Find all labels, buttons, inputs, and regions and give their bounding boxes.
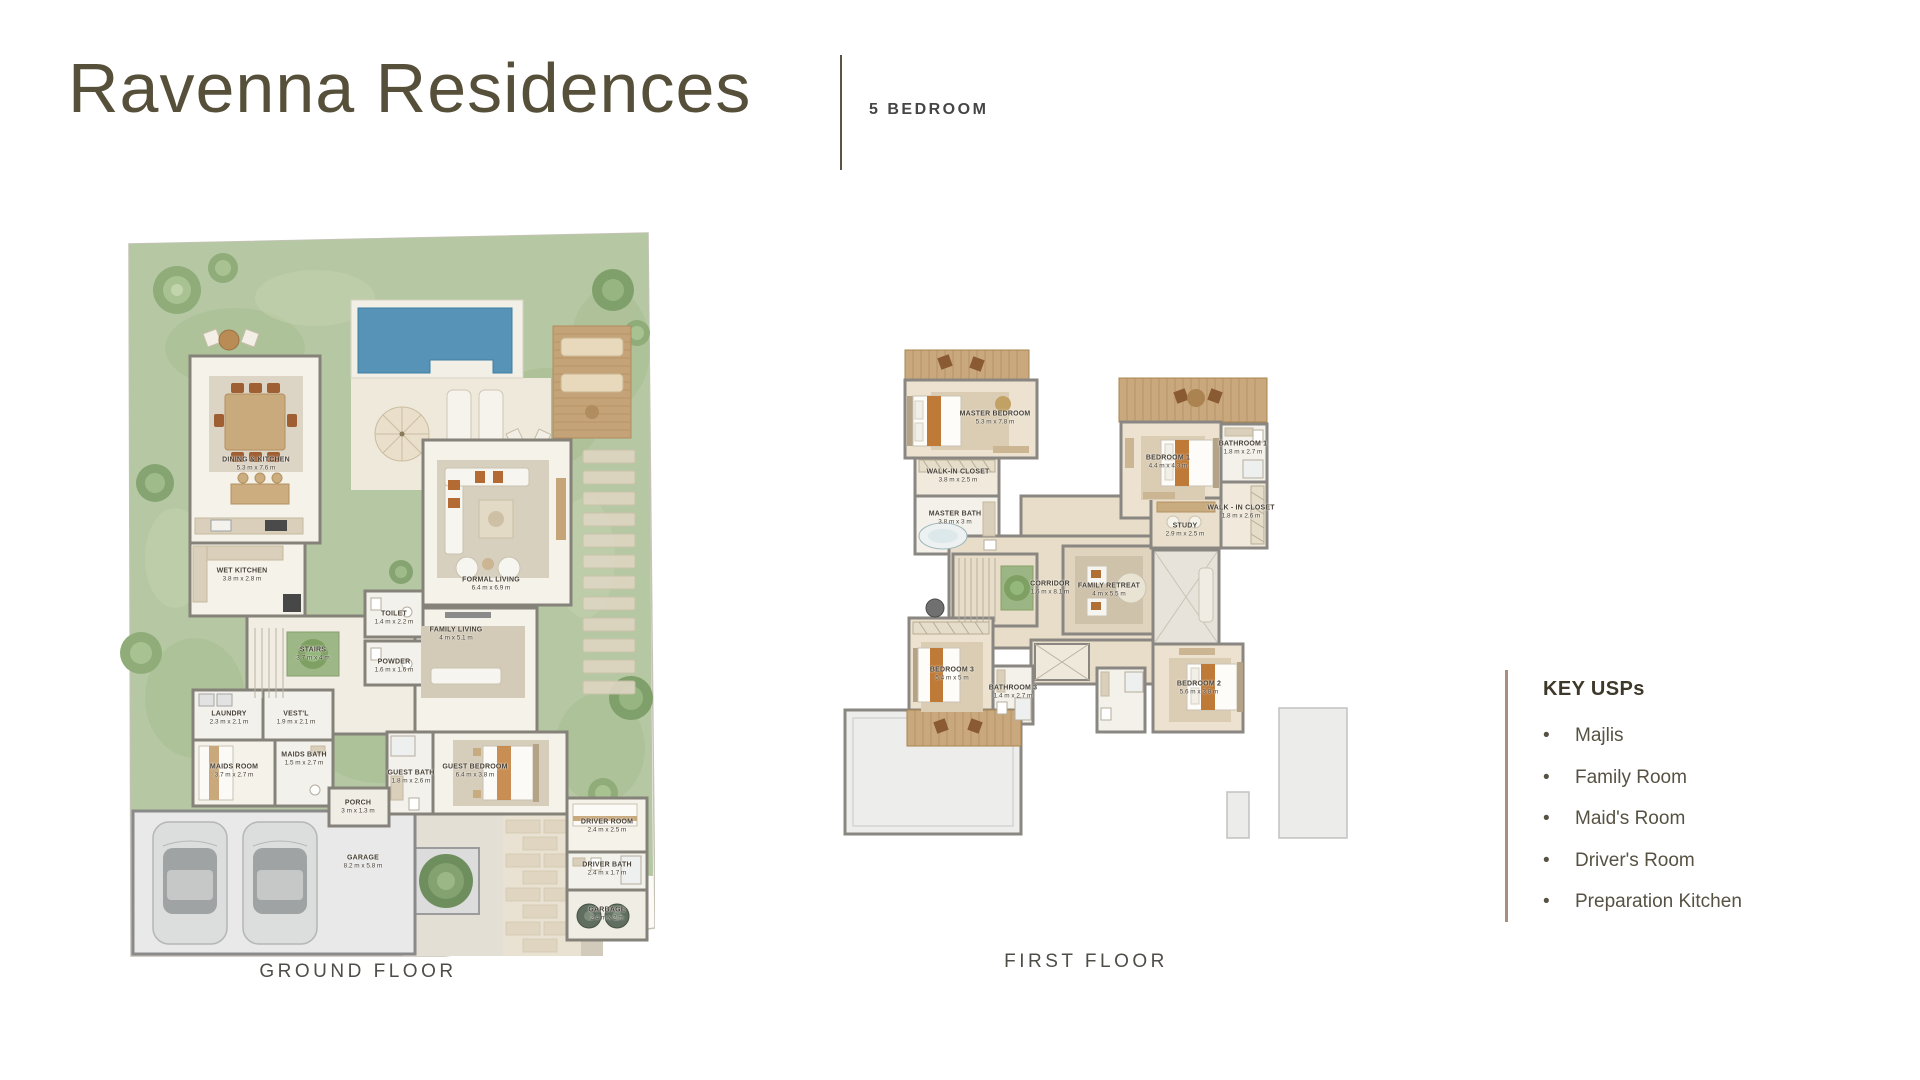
usp-accent-rule xyxy=(1505,670,1508,922)
brochure-page: Ravenna Residences 5 BEDROOM xyxy=(0,0,1920,1080)
first-floor-plan: MASTER BEDROOM5.3 m x 7.8 m WALK-IN CLOS… xyxy=(843,340,1358,940)
ground-floor-plan-graphic xyxy=(115,228,655,958)
label-maids-room: MAIDS ROOM3.7 m x 2.7 m xyxy=(210,762,258,779)
courtyard-planter xyxy=(413,848,479,914)
label-wet-kitchen: WET KITCHEN3.8 m x 2.8 m xyxy=(217,566,268,583)
header-divider xyxy=(840,55,842,170)
label-driver-room: DRIVER ROOM2.4 m x 2.5 m xyxy=(581,817,633,834)
key-usps-panel: KEY USPs Majlis Family Room Maid's Room … xyxy=(1543,678,1742,931)
label-corridor: CORRIDOR1.6 m x 8.1 m xyxy=(1030,579,1070,596)
label-dining-kitchen: DINING & KITCHEN5.3 m x 7.6 m xyxy=(222,455,290,472)
usp-item-drivers-room: Driver's Room xyxy=(1543,848,1742,874)
unit-type-label: 5 BEDROOM xyxy=(869,101,988,119)
car-2 xyxy=(243,822,317,944)
roof-right-small xyxy=(1227,792,1249,838)
linen-closet xyxy=(1035,644,1089,680)
first-floor-caption: FIRST FLOOR xyxy=(956,951,1216,973)
label-master-bedroom: MASTER BEDROOM5.3 m x 7.8 m xyxy=(960,409,1031,426)
label-vestibule: VEST'L1.9 m x 2.1 m xyxy=(277,709,316,726)
label-master-bath: MASTER BATH3.8 m x 3 m xyxy=(929,509,982,526)
key-usps-list: Majlis Family Room Maid's Room Driver's … xyxy=(1543,723,1742,915)
label-study: STUDY2.9 m x 2.5 m xyxy=(1166,521,1205,538)
label-formal-living: FORMAL LIVING6.4 m x 6.9 m xyxy=(462,575,520,592)
label-garbage: GARBAGE2.4 m x 2 m xyxy=(588,905,625,922)
label-bedroom-3: BEDROOM 35.4 m x 5 m xyxy=(930,665,974,682)
label-stairs: STAIRS3.7 m x 4 m xyxy=(296,645,329,662)
first-floor-plan-graphic xyxy=(843,340,1358,940)
formal-living-furniture xyxy=(437,460,566,579)
label-bathroom-1: BATHROOM 11.8 m x 2.7 m xyxy=(1219,439,1268,456)
label-garage: GARAGE8.2 m x 5.8 m xyxy=(344,853,383,870)
usp-item-majlis: Majlis xyxy=(1543,723,1742,749)
page-title: Ravenna Residences xyxy=(68,48,751,128)
label-family-living: FAMILY LIVING4 m x 5.1 m xyxy=(430,625,483,642)
ground-floor-plan: DINING & KITCHEN5.3 m x 7.6 m WET KITCHE… xyxy=(115,228,655,958)
pool-umbrella xyxy=(375,407,429,461)
usp-item-preparation-kitchen: Preparation Kitchen xyxy=(1543,889,1742,915)
label-powder: POWDER1.6 m x 1.6 m xyxy=(375,657,414,674)
balcony-top-right xyxy=(1119,378,1267,422)
roof-right-large xyxy=(1279,708,1347,838)
label-wic-bedroom-1: WALK - IN CLOSET1.8 m x 2.6 m xyxy=(1207,503,1274,520)
label-maids-bath: MAIDS BATH1.5 m x 2.7 m xyxy=(281,750,326,767)
label-driver-bath: DRIVER BATH2.4 m x 1.7 m xyxy=(582,860,632,877)
label-guest-bath: GUEST BATH1.8 m x 2.6 m xyxy=(388,768,435,785)
balcony-top-left xyxy=(905,350,1029,380)
car-1 xyxy=(153,822,227,944)
label-bedroom-2: BEDROOM 25.6 m x 3.8 m xyxy=(1177,679,1221,696)
balcony-bedroom-3 xyxy=(907,710,1021,746)
label-toilet: TOILET1.4 m x 2.2 m xyxy=(375,609,414,626)
label-porch: PORCH3 m x 1.3 m xyxy=(341,798,374,815)
exhaust-fan xyxy=(926,599,944,617)
key-usps-heading: KEY USPs xyxy=(1543,678,1742,701)
label-family-retreat: FAMILY RETREAT4 m x 5.5 m xyxy=(1078,581,1140,598)
usp-item-family-room: Family Room xyxy=(1543,765,1742,791)
ground-floor-caption: GROUND FLOOR xyxy=(228,961,488,983)
label-bathroom-3: BATHROOM 31.4 m x 2.7 m xyxy=(989,683,1038,700)
usp-item-maids-room: Maid's Room xyxy=(1543,806,1742,832)
label-wic-master: WALK-IN CLOSET3.8 m x 2.5 m xyxy=(926,467,989,484)
label-guest-bedroom: GUEST BEDROOM6.4 m x 3.8 m xyxy=(442,762,507,779)
wood-deck xyxy=(553,326,631,438)
label-bedroom-1: BEDROOM 14.4 m x 4.3 m xyxy=(1146,453,1190,470)
label-laundry: LAUNDRY2.3 m x 2.1 m xyxy=(210,709,249,726)
